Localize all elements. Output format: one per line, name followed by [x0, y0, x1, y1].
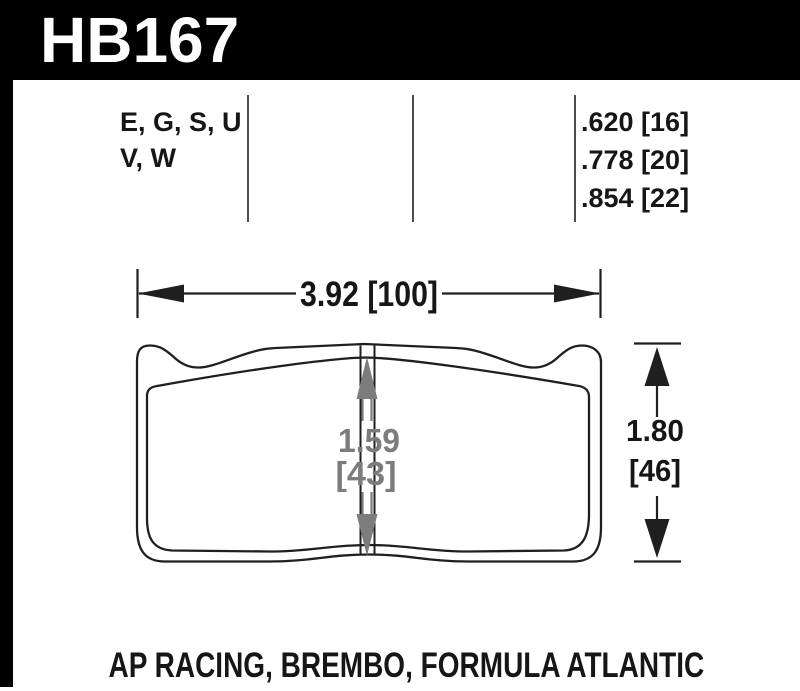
part-number: HB167 [40, 8, 239, 72]
compound-codes-line2: V, W [120, 140, 242, 176]
column-divider-1 [247, 95, 249, 222]
overall-height-value: 1.80 [626, 413, 684, 448]
overall-height-bracket: [46] [629, 453, 681, 488]
pad-thickness-option-1: .620 [16] [581, 103, 689, 141]
center-height-value: 1.59 [338, 422, 400, 459]
technical-drawing: 3.92 [100] 1.59 [43] 1.80 [46] [0, 240, 800, 600]
column-divider-2 [412, 95, 414, 222]
compound-codes-line1: E, G, S, U [120, 104, 242, 140]
pad-thickness-option-2: .778 [20] [581, 141, 689, 179]
brake-pad-spec-sheet: HB167 E, G, S, U V, W .620 [16] .778 [20… [0, 0, 800, 691]
width-arrowhead-right [554, 285, 600, 303]
height-arrowhead-up [645, 347, 670, 386]
width-dimension-label: 3.92 [100] [300, 275, 438, 314]
part-number-header: HB167 [0, 0, 800, 80]
width-arrowhead-left [138, 285, 184, 303]
center-height-bracket: [43] [336, 455, 397, 492]
pad-thickness-option-3: .854 [22] [581, 179, 689, 217]
applications-text-container: AP RACING, BREMBO, FORMULA ATLANTIC [13, 646, 800, 686]
applications-text: AP RACING, BREMBO, FORMULA ATLANTIC [109, 646, 705, 686]
height-arrowhead-down [645, 519, 670, 558]
pad-thickness-list: .620 [16] .778 [20] .854 [22] [581, 103, 689, 217]
column-divider-3 [574, 95, 576, 222]
compound-codes: E, G, S, U V, W [120, 104, 242, 176]
